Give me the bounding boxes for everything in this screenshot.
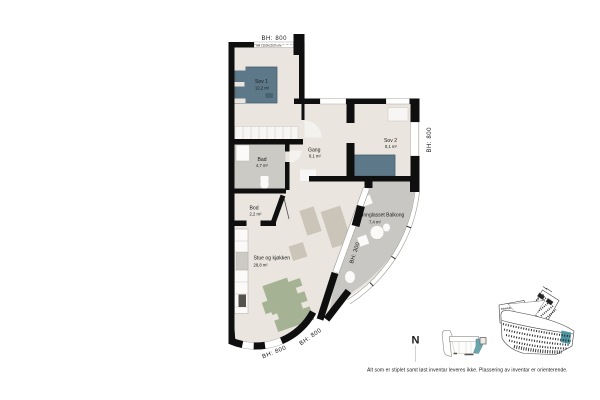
svg-text:9M 1100x1200 omr.: 9M 1100x1200 omr. — [256, 43, 282, 47]
svg-text:Sov 1: Sov 1 — [255, 79, 268, 85]
svg-text:28,8 m²: 28,8 m² — [254, 263, 269, 268]
svg-text:Stue og kjøkken: Stue og kjøkken — [254, 256, 291, 262]
svg-text:2,2 m²: 2,2 m² — [250, 212, 262, 217]
svg-text:8,1 m²: 8,1 m² — [309, 154, 321, 159]
svg-text:BH: 800: BH: 800 — [427, 127, 433, 153]
svg-text:7,4 m²: 7,4 m² — [369, 220, 381, 225]
svg-text:Innglasset Balkong: Innglasset Balkong — [362, 213, 404, 219]
svg-text:Alt som er stiplet samt løst i: Alt som er stiplet samt løst inventar le… — [367, 368, 568, 374]
svg-text:4,7 m²: 4,7 m² — [256, 163, 268, 168]
svg-text:N: N — [412, 335, 420, 347]
svg-text:BH: 800: BH: 800 — [262, 36, 288, 42]
svg-text:8,1 m²: 8,1 m² — [385, 144, 397, 149]
svg-text:12,2 m²: 12,2 m² — [255, 86, 270, 91]
